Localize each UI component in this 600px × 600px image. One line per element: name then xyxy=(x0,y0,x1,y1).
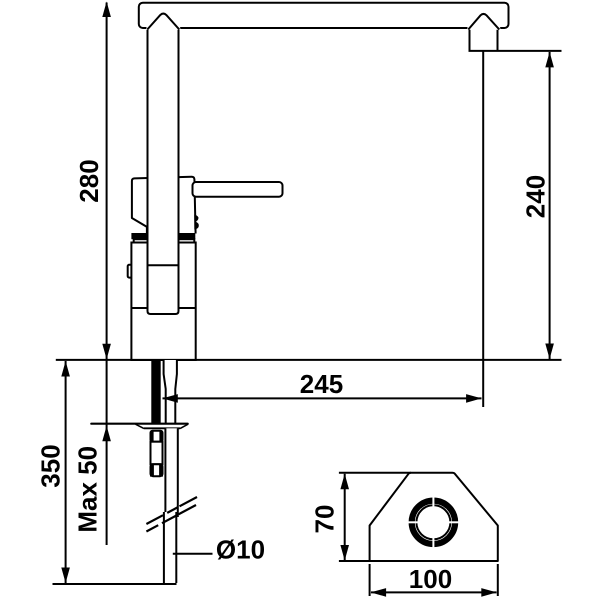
svg-text:Ø10: Ø10 xyxy=(216,535,265,565)
svg-text:245: 245 xyxy=(300,369,343,399)
svg-text:70: 70 xyxy=(310,505,340,534)
svg-text:280: 280 xyxy=(74,159,104,202)
svg-text:100: 100 xyxy=(409,564,452,594)
svg-text:Max 50: Max 50 xyxy=(73,446,103,533)
svg-text:240: 240 xyxy=(521,175,551,218)
svg-text:350: 350 xyxy=(36,444,66,487)
